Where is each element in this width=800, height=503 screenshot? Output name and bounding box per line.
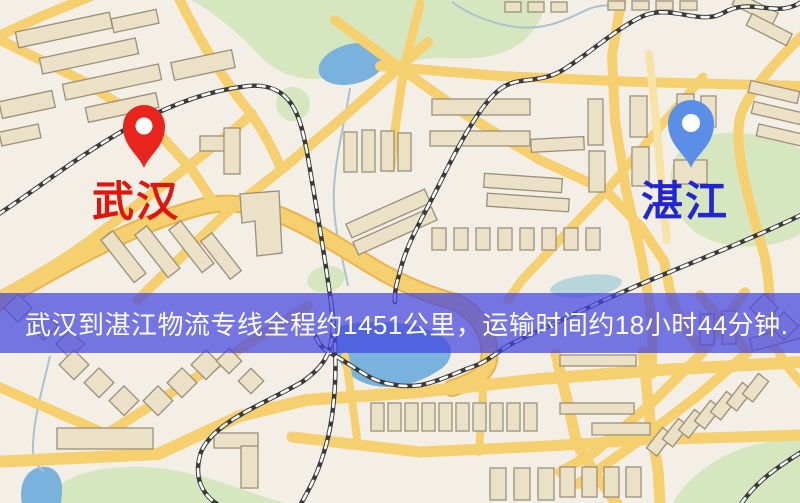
building (589, 151, 605, 192)
route-info-banner: 武汉到湛江物流专线全程约1451公里，运输时间约18小时44分钟. (0, 293, 800, 353)
building (632, 1, 649, 10)
building (432, 228, 446, 250)
building (430, 131, 530, 146)
destination-city-label: 湛江 (641, 181, 729, 223)
building (454, 228, 468, 250)
building (439, 403, 452, 431)
building (604, 467, 619, 497)
building (520, 228, 534, 250)
building (582, 467, 597, 497)
building (528, 2, 544, 12)
building (456, 403, 469, 431)
building (514, 468, 530, 500)
building (680, 1, 697, 10)
building (608, 1, 625, 10)
building (398, 133, 411, 171)
building (560, 467, 575, 497)
building (490, 468, 506, 500)
building (542, 228, 556, 250)
building (381, 131, 394, 171)
building (630, 96, 647, 137)
building (626, 467, 641, 497)
building (588, 99, 603, 145)
building (473, 403, 486, 431)
building (551, 2, 567, 12)
blue-map-pin-hole (682, 114, 700, 132)
map-screenshot: 武汉 湛江 武汉到湛江物流专线全程约1451公里，运输时间约18小时44分钟. (0, 0, 800, 503)
building (586, 228, 600, 250)
building (560, 355, 636, 366)
building (57, 428, 153, 449)
building (371, 403, 384, 431)
building (656, 1, 673, 10)
building (507, 403, 520, 431)
building (538, 468, 554, 500)
building (560, 403, 634, 414)
route-info-text: 武汉到湛江物流专线全程约1451公里，运输时间约18小时44分钟. (25, 305, 788, 342)
origin-city-label: 武汉 (92, 181, 180, 223)
building (388, 403, 401, 431)
building (505, 2, 521, 12)
map-canvas (0, 0, 800, 503)
red-map-pin-hole (136, 118, 153, 135)
building (344, 132, 357, 172)
building (498, 228, 512, 250)
building (405, 403, 418, 431)
building (490, 403, 503, 431)
building (524, 403, 537, 431)
building (224, 128, 240, 174)
building (422, 403, 435, 431)
building (362, 130, 375, 172)
building (476, 228, 490, 250)
building (592, 423, 650, 435)
building (531, 137, 585, 153)
building (564, 228, 578, 250)
building (241, 446, 258, 488)
